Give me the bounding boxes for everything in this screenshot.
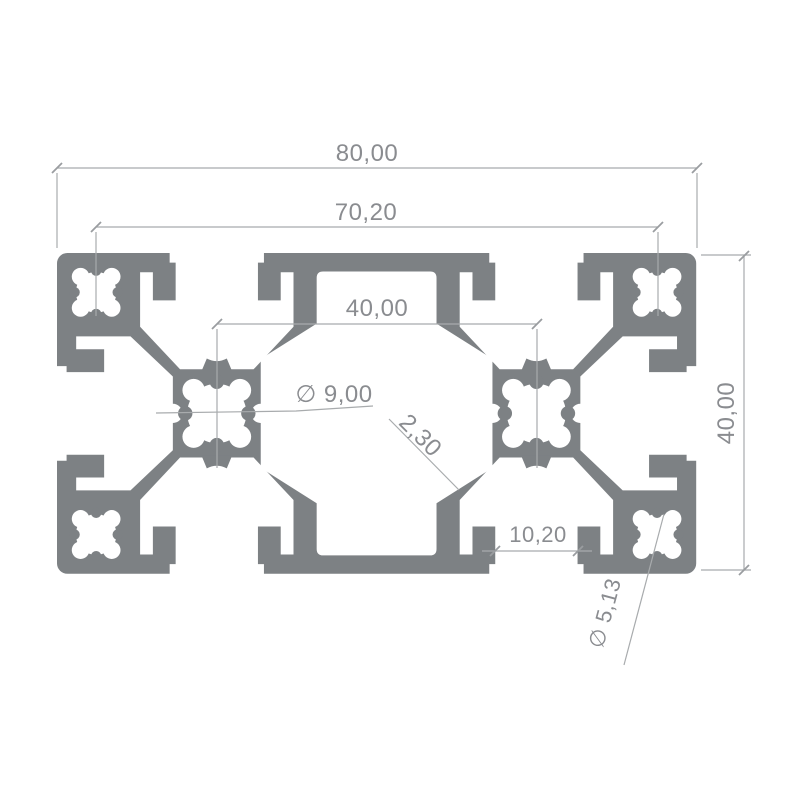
- corner-hole-bottom-right: [630, 508, 684, 562]
- dimension-overall-width: 80,00: [52, 140, 702, 248]
- drawing-canvas: 80,00 70,20 40,00 ∅ 9,00 2,3: [0, 0, 800, 800]
- dimension-label-corner-hole-spacing: 70,20: [335, 199, 398, 226]
- dimension-label-center-hole-spacing: 40,00: [346, 295, 409, 322]
- dimension-overall-height: 40,00: [701, 251, 751, 575]
- dimension-label-core-hole-diameter: ∅ 9,00: [295, 381, 372, 408]
- dimension-label-overall-height: 40,00: [713, 382, 740, 445]
- technical-drawing: 80,00 70,20 40,00 ∅ 9,00 2,3: [0, 0, 800, 800]
- corner-hole-top-right: [630, 265, 684, 319]
- dimension-label-overall-width: 80,00: [336, 140, 399, 167]
- corner-hole-bottom-left: [69, 508, 123, 562]
- dimension-label-corner-core-hole: ∅ 5,13: [583, 575, 626, 650]
- dimension-label-slot-opening: 10,20: [509, 522, 567, 547]
